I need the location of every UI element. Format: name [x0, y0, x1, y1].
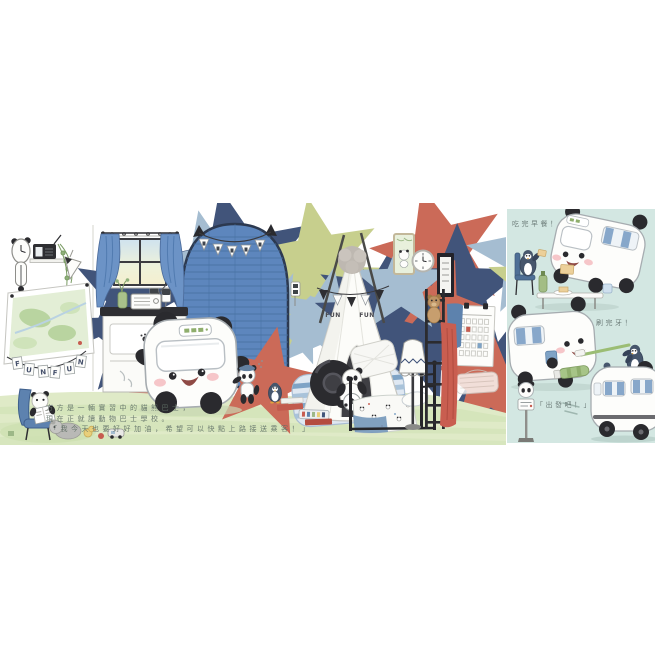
caption-line-3: 「我今天也要好好加油，希望可以快點上路接送乘客！」	[50, 424, 313, 435]
banner-letter: N	[40, 368, 47, 376]
red-cloth	[440, 322, 458, 427]
story-caption: 方方是一輛實習中的貓熊巴士， 現在正就讀動物巴士學校。 「我今天也要好好加油，希…	[46, 403, 313, 435]
panel-caption-teeth: 刷完牙！	[596, 318, 634, 328]
banner-letter: U	[26, 366, 33, 375]
caption-line-2: 現在正就讀動物巴士學校。	[46, 414, 313, 425]
wall-map	[4, 283, 94, 364]
panda-wall-clock	[11, 237, 30, 292]
panel-caption-depart: 「出發吧！」	[536, 400, 593, 410]
wall-clock-plate	[413, 251, 434, 272]
destination-sign	[179, 324, 212, 337]
panda-bus-departing	[591, 361, 655, 443]
book-spread: F U N F U N	[0, 0, 655, 655]
banner-letter: U	[66, 365, 73, 374]
teepee-text: FUN	[359, 312, 375, 319]
teepee-text: FUN	[325, 312, 341, 319]
banner-letter: F	[52, 369, 58, 377]
toothbrush-head	[575, 349, 586, 357]
caption-line-1: 方方是一輛實習中的貓熊巴士，	[46, 403, 313, 414]
framed-panda-picture	[394, 234, 414, 274]
black-picture-frame	[437, 253, 454, 297]
panel-caption-breakfast: 吃完早餐！	[512, 219, 560, 229]
